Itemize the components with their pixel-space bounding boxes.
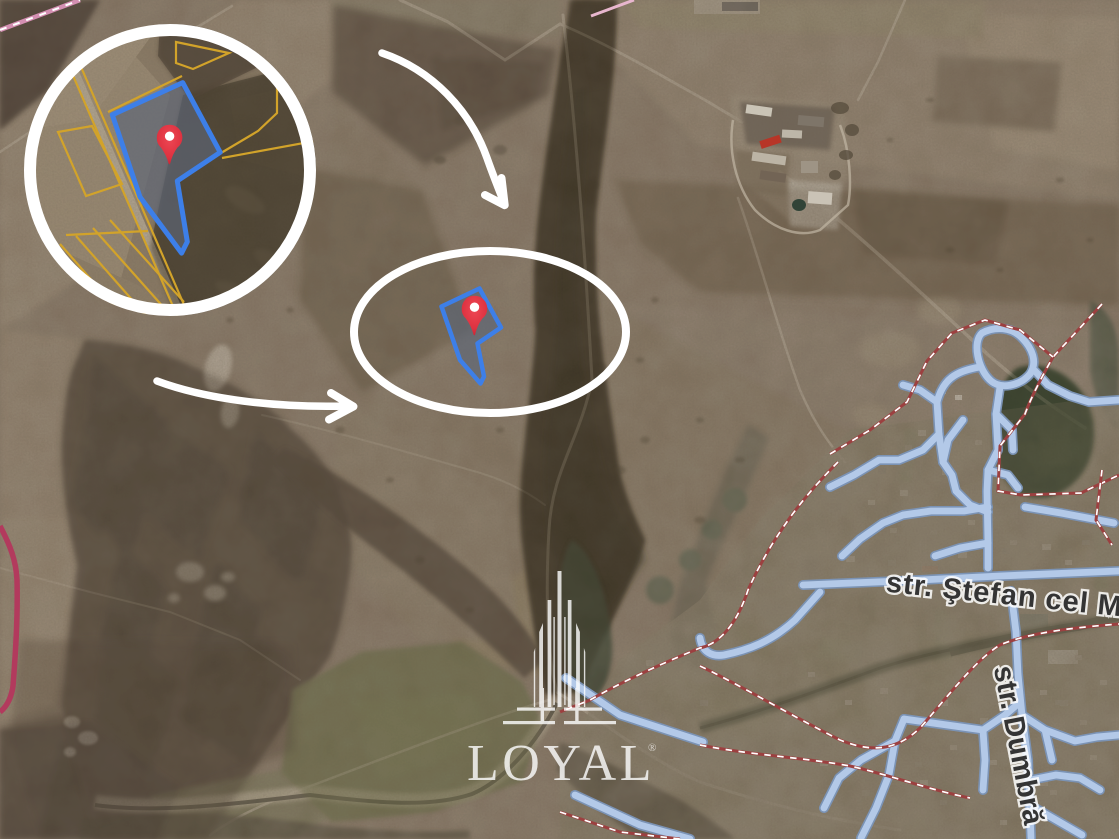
svg-text:®: ®	[648, 742, 656, 754]
svg-text:LOYAL: LOYAL	[467, 735, 655, 792]
